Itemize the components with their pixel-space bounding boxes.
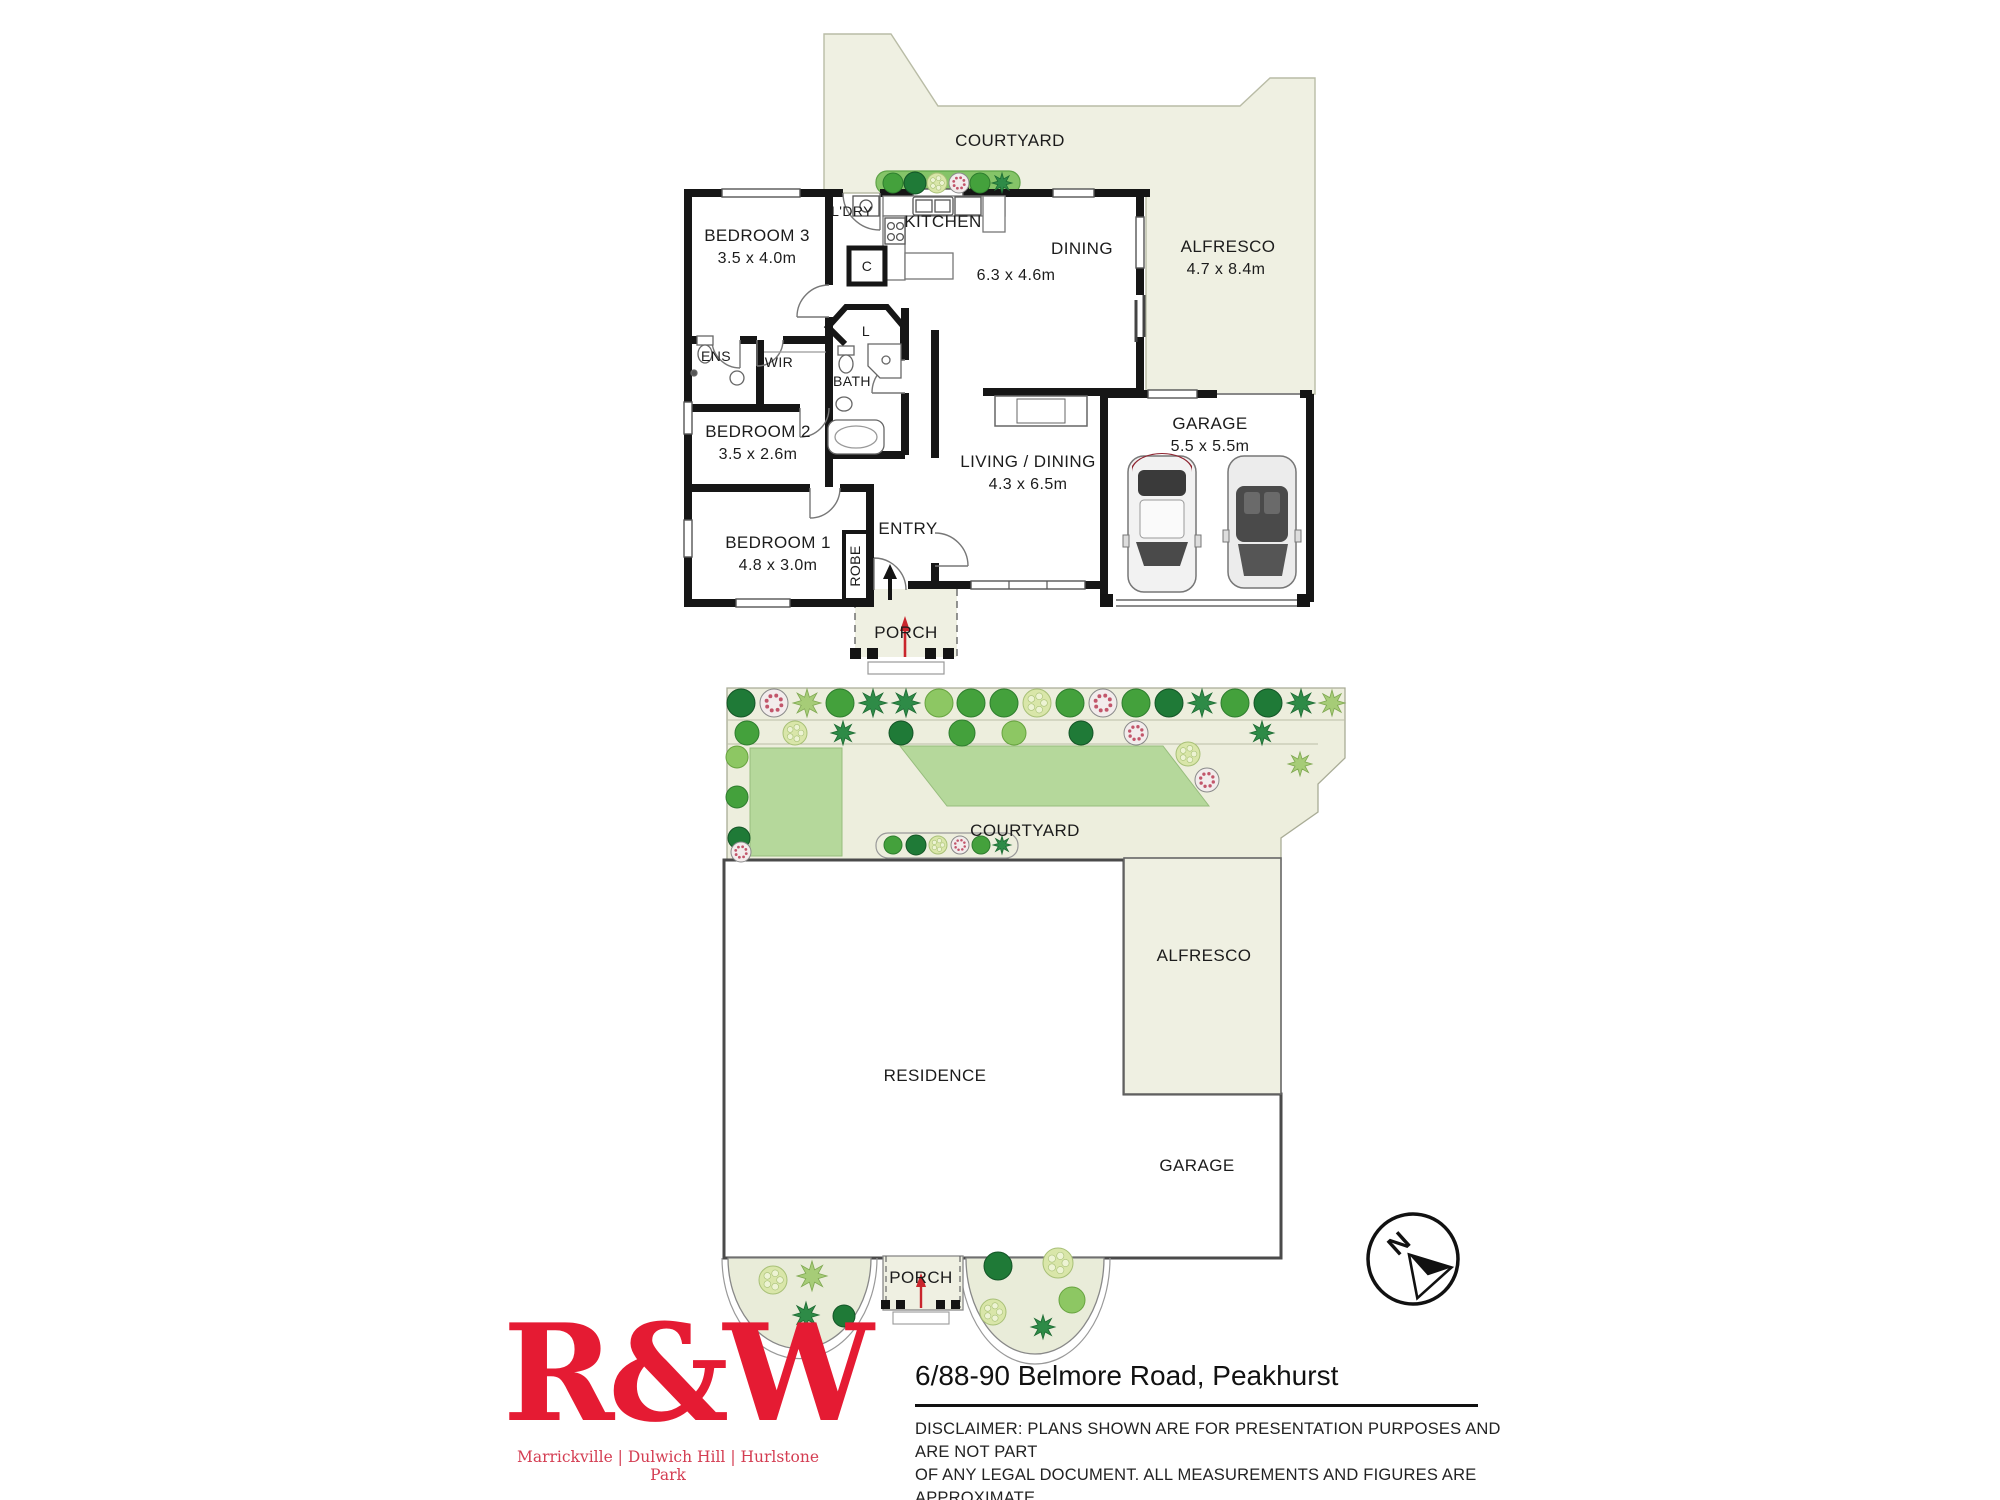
fp-bedroom2-dims: 3.5 x 2.6m bbox=[719, 446, 798, 463]
fp-dining-dims: 6.3 x 4.6m bbox=[977, 267, 1056, 284]
sp-residence-label: RESIDENCE bbox=[884, 1066, 987, 1085]
fp-linen-label: L bbox=[862, 323, 870, 339]
fp-alfresco-label: ALFRESCO bbox=[1181, 237, 1276, 256]
garage-door bbox=[1100, 594, 1310, 607]
floorplan-page: COURTYARD BEDROOM 3 3.5 x 4.0m L'DRY KIT… bbox=[0, 0, 2000, 1500]
disclaimer-line-1: DISCLAIMER: PLANS SHOWN ARE FOR PRESENTA… bbox=[915, 1418, 1505, 1464]
property-address: 6/88-90 Belmore Road, Peakhurst bbox=[915, 1360, 1338, 1392]
fp-porch-label: PORCH bbox=[874, 623, 937, 642]
fp-garage-dims: 5.5 x 5.5m bbox=[1171, 438, 1250, 455]
sp-alfresco-label: ALFRESCO bbox=[1157, 946, 1252, 965]
fp-cupboard-label: C bbox=[862, 258, 873, 274]
fp-bath-label: BATH bbox=[833, 373, 871, 389]
sp-courtyard-label: COURTYARD bbox=[970, 821, 1080, 840]
agency-tagline: Marrickville | Dulwich Hill | Hurlstone … bbox=[498, 1448, 838, 1484]
fp-bedroom3-label: BEDROOM 3 bbox=[704, 226, 810, 245]
fp-living-dims: 4.3 x 6.5m bbox=[989, 476, 1068, 493]
fp-garage-label: GARAGE bbox=[1172, 414, 1247, 433]
sliding-door bbox=[1136, 295, 1144, 342]
fp-bedroom1-dims: 4.8 x 3.0m bbox=[739, 557, 818, 574]
site-lawn-centre bbox=[900, 746, 1209, 806]
fp-robe-label: ROBE bbox=[847, 545, 863, 586]
fp-ldry-label: L'DRY bbox=[831, 203, 873, 219]
fp-bedroom1-label: BEDROOM 1 bbox=[725, 533, 831, 552]
site-lawn-left bbox=[750, 748, 842, 856]
plan-graphics: COURTYARD BEDROOM 3 3.5 x 4.0m L'DRY KIT… bbox=[0, 0, 2000, 1500]
address-divider bbox=[915, 1404, 1478, 1407]
fp-bedroom2-label: BEDROOM 2 bbox=[705, 422, 811, 441]
site-alfresco-area bbox=[1124, 858, 1281, 1094]
disclaimer-line-2: OF ANY LEGAL DOCUMENT. ALL MEASUREMENTS … bbox=[915, 1464, 1505, 1500]
sp-porch-label: PORCH bbox=[889, 1268, 952, 1287]
fp-living-label: LIVING / DINING bbox=[960, 452, 1095, 471]
fp-dining-label: DINING bbox=[1051, 239, 1113, 258]
car-icon bbox=[1123, 453, 1201, 592]
sp-garage-label: GARAGE bbox=[1159, 1156, 1234, 1175]
fp-wir-label: WIR bbox=[765, 354, 793, 370]
fp-courtyard-label: COURTYARD bbox=[955, 131, 1065, 150]
agency-logo: R&W bbox=[503, 1306, 833, 1440]
compass-icon: N bbox=[1368, 1214, 1458, 1304]
fp-bedroom3-dims: 3.5 x 4.0m bbox=[718, 250, 797, 267]
disclaimer-text: DISCLAIMER: PLANS SHOWN ARE FOR PRESENTA… bbox=[915, 1418, 1505, 1500]
car-icon bbox=[1223, 456, 1301, 588]
fp-alfresco-dims: 4.7 x 8.4m bbox=[1187, 261, 1266, 278]
fp-entry-label: ENTRY bbox=[878, 519, 937, 538]
fp-kitchen-label: KITCHEN bbox=[904, 212, 981, 231]
site-porch bbox=[881, 1256, 963, 1324]
fp-ens-label: ENS bbox=[701, 348, 731, 364]
dining-cabinet bbox=[995, 396, 1087, 426]
